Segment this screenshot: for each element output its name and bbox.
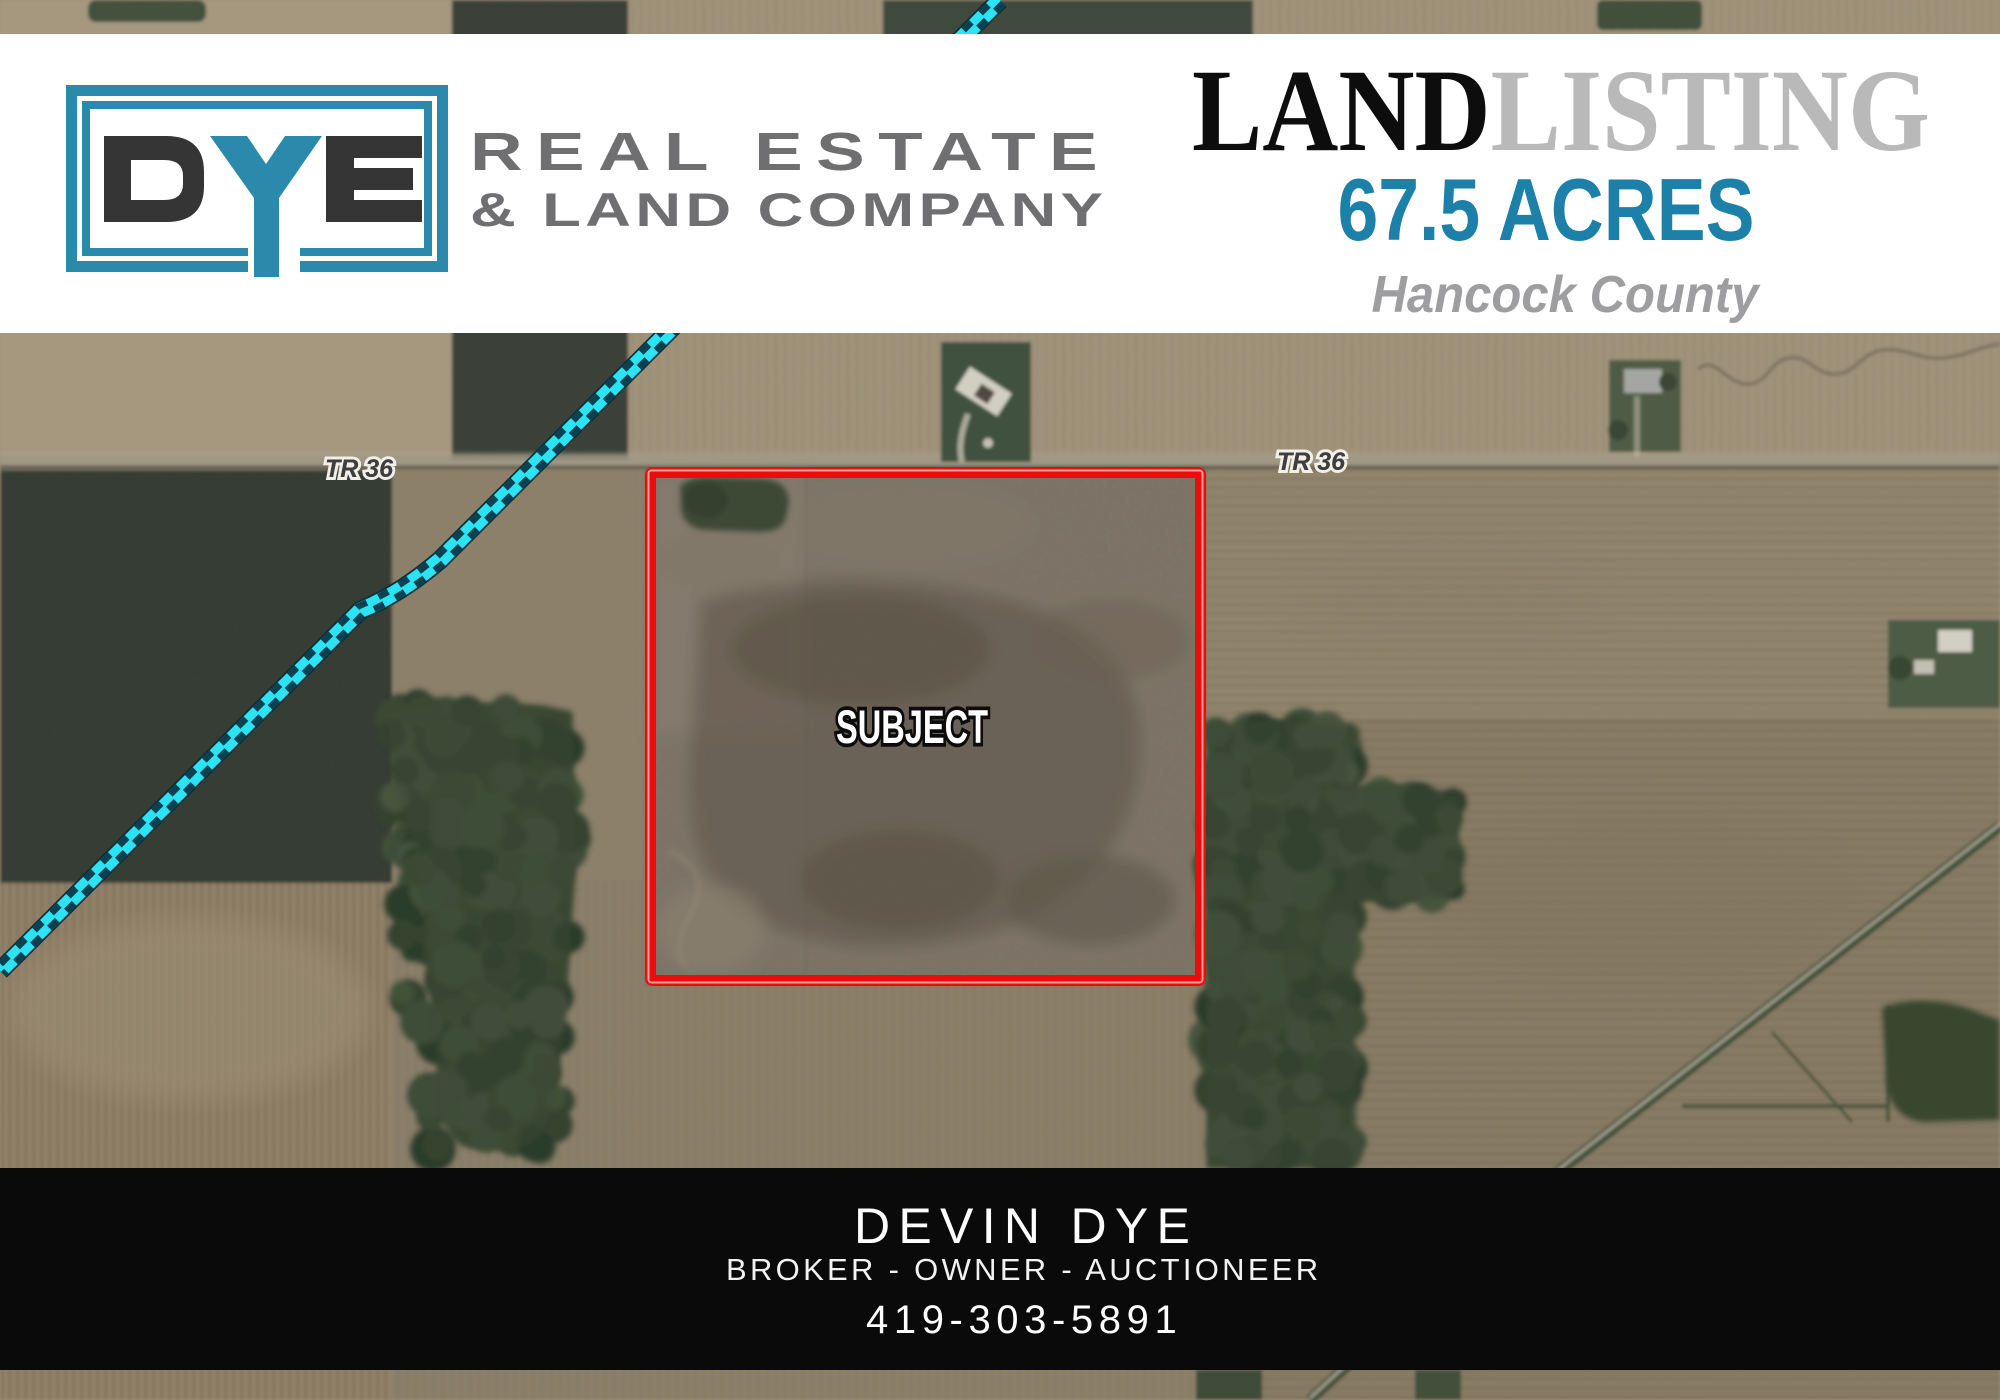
svg-text:TR 36: TR 36 — [1277, 448, 1346, 476]
svg-text:DEVIN DYE: DEVIN DYE — [854, 1198, 1198, 1254]
svg-text:SUBJECT: SUBJECT — [836, 700, 988, 753]
svg-text:419-303-5891: 419-303-5891 — [866, 1298, 1182, 1342]
svg-text:LANDLISTING: LANDLISTING — [1192, 45, 1930, 176]
svg-text:TR 36: TR 36 — [325, 455, 394, 483]
svg-text:Hancock County: Hancock County — [1372, 266, 1762, 324]
svg-text:& LAND COMPANY: & LAND COMPANY — [470, 183, 1107, 236]
svg-text:67.5 ACRES: 67.5 ACRES — [1338, 160, 1755, 259]
svg-text:BROKER - OWNER - AUCTIONEER: BROKER - OWNER - AUCTIONEER — [726, 1252, 1321, 1287]
svg-text:REAL ESTATE: REAL ESTATE — [470, 121, 1111, 182]
